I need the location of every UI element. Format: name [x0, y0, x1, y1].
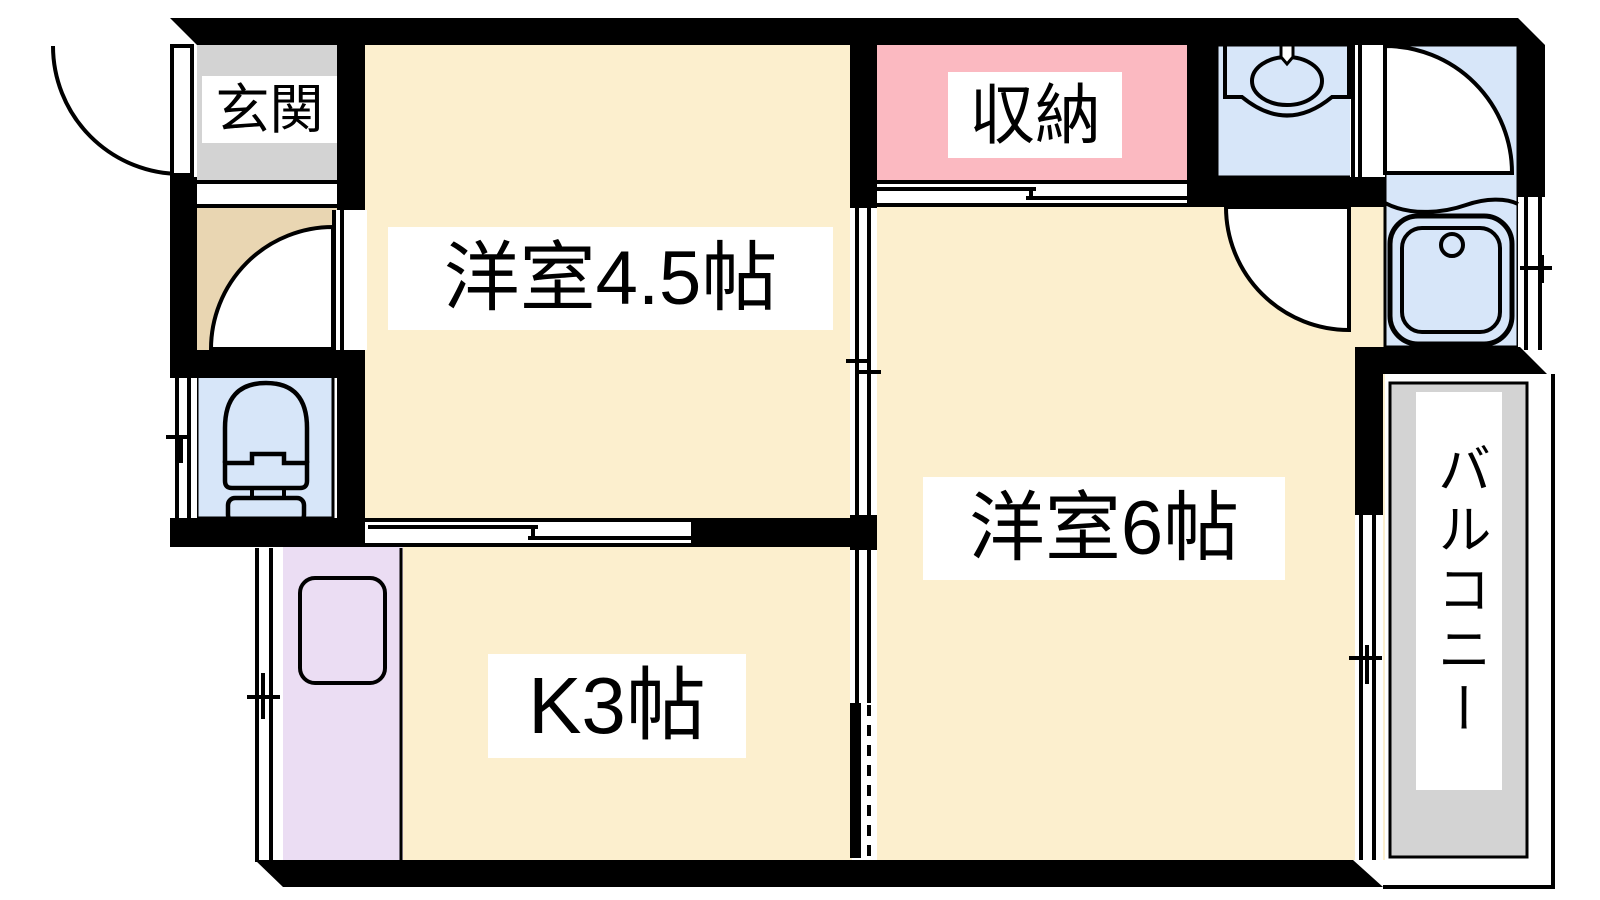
washroom-floor	[1217, 45, 1352, 177]
k-divider-sliding-door	[365, 518, 691, 547]
label-western-room-45: 洋室4.5帖	[388, 227, 833, 330]
bathroom-window	[1518, 197, 1552, 350]
kitchen-window	[230, 548, 283, 862]
wall-partition-lower	[850, 703, 861, 858]
label-closet: 収納	[948, 72, 1122, 158]
wall-bottom	[255, 860, 1383, 887]
label-balcony: バルコニー	[1416, 392, 1502, 790]
entrance-step	[197, 180, 337, 208]
label-western-room-6: 洋室6帖	[923, 477, 1285, 580]
wall-toilet-right	[337, 350, 365, 518]
wall-washroom-bottom	[1187, 177, 1385, 207]
wall-right-upper	[1518, 45, 1545, 197]
bathroom-doorway-opening	[1350, 45, 1385, 177]
floorplan-canvas: 玄関 洋室4.5帖 収納 洋室6帖 K3帖 バルコニー	[0, 0, 1600, 900]
label-entrance: 玄関	[202, 76, 337, 143]
hallway-doorway-opening	[333, 210, 367, 350]
entrance-door-arc	[53, 46, 181, 174]
toilet-window	[166, 378, 197, 518]
wall-toilet-top	[170, 350, 365, 378]
wall-k-divider	[691, 518, 852, 547]
entrance-door-panel	[172, 46, 192, 175]
closet-sliding-door	[877, 180, 1187, 207]
wall-western6-right	[1355, 374, 1383, 515]
partition-sliding-upper	[846, 208, 881, 515]
wall-left	[170, 177, 197, 378]
wall-partition-mid	[850, 515, 877, 550]
wall-partition-top	[850, 18, 877, 208]
label-kitchen: K3帖	[488, 654, 746, 758]
partition-sliding-lower	[850, 550, 877, 703]
wall-entrance-right	[337, 18, 365, 210]
wall-toilet-bottom	[170, 518, 365, 547]
wall-bathroom-bottom	[1355, 347, 1547, 374]
